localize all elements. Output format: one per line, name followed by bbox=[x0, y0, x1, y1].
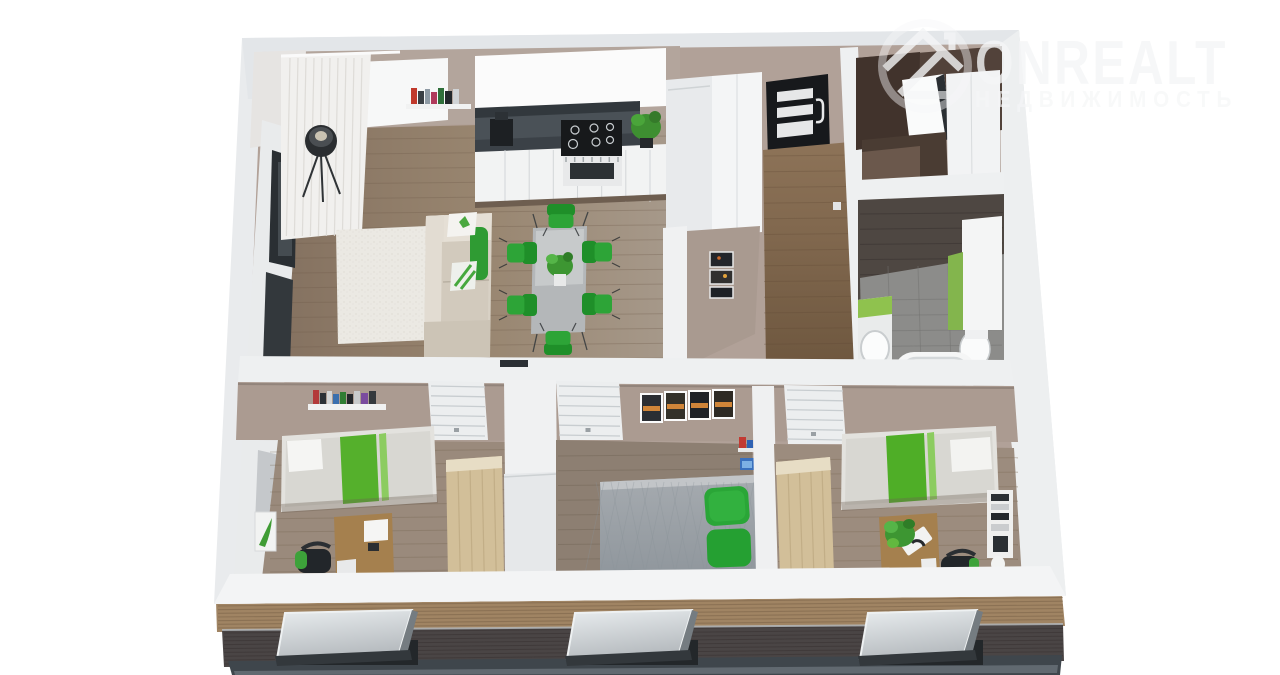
svg-text:НЕДВИЖИМОСТЬ: НЕДВИЖИМОСТЬ bbox=[975, 86, 1238, 112]
